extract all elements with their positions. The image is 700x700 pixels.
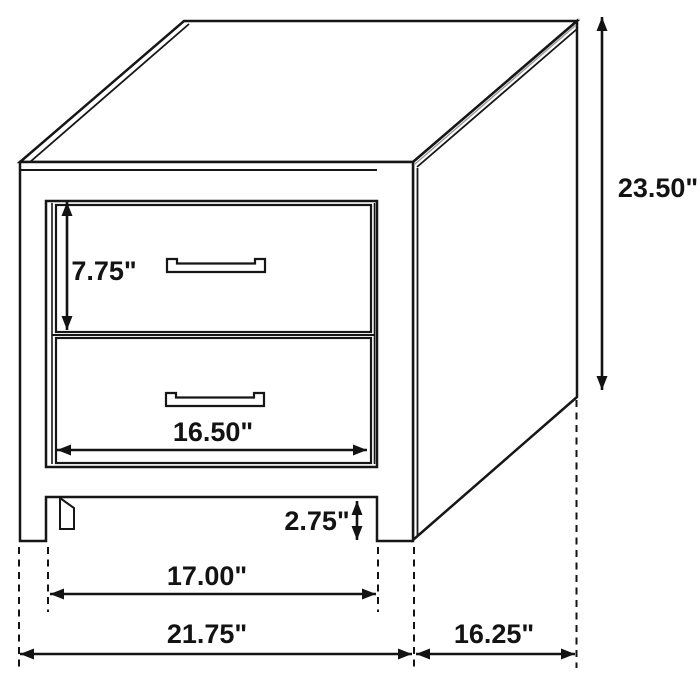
dimension-label-foot-height: 2.75" bbox=[284, 506, 349, 536]
dimension-height: 23.50" bbox=[602, 17, 698, 390]
dimension-label-inner-width: 17.00" bbox=[167, 561, 247, 591]
dimension-label-overall-width: 21.75" bbox=[167, 619, 247, 649]
dimension-side-depth: 16.25" bbox=[416, 619, 575, 654]
dimension-foot-height: 2.75" bbox=[284, 501, 357, 540]
dimension-label-drawer-height: 7.75" bbox=[71, 256, 136, 286]
dimension-label-height: 23.50" bbox=[618, 173, 698, 203]
dimension-inner-width: 17.00" bbox=[50, 561, 376, 594]
dimension-label-drawer-width: 16.50" bbox=[173, 417, 253, 447]
nightstand-diagram-svg: 23.50" 7.75" 16.50" 2.75" 17.00" 21.75" bbox=[0, 0, 700, 700]
furniture-dimension-diagram: 23.50" 7.75" 16.50" 2.75" 17.00" 21.75" bbox=[0, 0, 700, 700]
dimension-overall-width: 21.75" bbox=[20, 619, 412, 654]
rear-left-leg bbox=[60, 498, 74, 529]
dimension-label-side-depth: 16.25" bbox=[454, 619, 534, 649]
front-face-outline bbox=[20, 162, 413, 541]
